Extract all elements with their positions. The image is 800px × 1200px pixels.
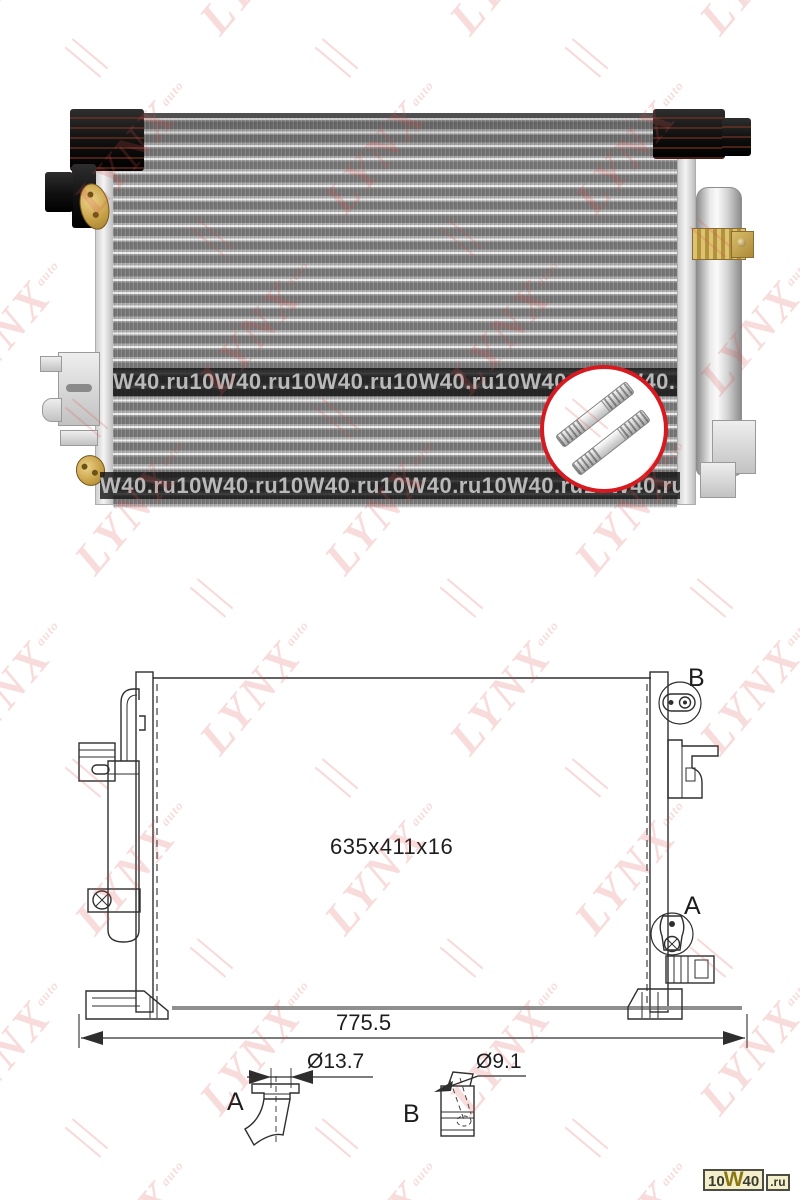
fitting-a-detail-drawing: [245, 1068, 373, 1145]
fitting-a-diameter: Ø13.7: [307, 1050, 364, 1074]
technical-drawing: [0, 0, 800, 1200]
logo-prefix: 10: [708, 1173, 725, 1191]
logo-w: W: [724, 1171, 744, 1189]
port-a-label: A: [684, 892, 701, 921]
fitting-b-detail-drawing: [434, 1072, 526, 1136]
core-size-label: 635x411x16: [330, 834, 453, 860]
fitting-b-diameter: Ø9.1: [476, 1050, 522, 1074]
fitting-a-detail-label: A: [227, 1088, 244, 1117]
overall-width-label: 775.5: [336, 1010, 391, 1036]
bracket-b-drawing: [668, 740, 718, 798]
product-card: W40.ru10W40.ru10W40.ru10W40.ru10W40.ru10…: [0, 0, 800, 1200]
bracket-a-drawing: [666, 956, 714, 983]
fitting-b-detail-label: B: [403, 1100, 420, 1129]
right-foot-drawing: [628, 989, 682, 1019]
logo-suffix: 40: [743, 1173, 760, 1191]
port-b-label: B: [688, 664, 705, 693]
site-logo-box: 10W40: [703, 1169, 764, 1191]
site-logo-10w40ru: 10W40 .ru: [703, 1169, 790, 1191]
drier-drawing: [79, 689, 145, 942]
left-foot-drawing: [86, 991, 168, 1019]
logo-domain: .ru: [766, 1174, 789, 1191]
